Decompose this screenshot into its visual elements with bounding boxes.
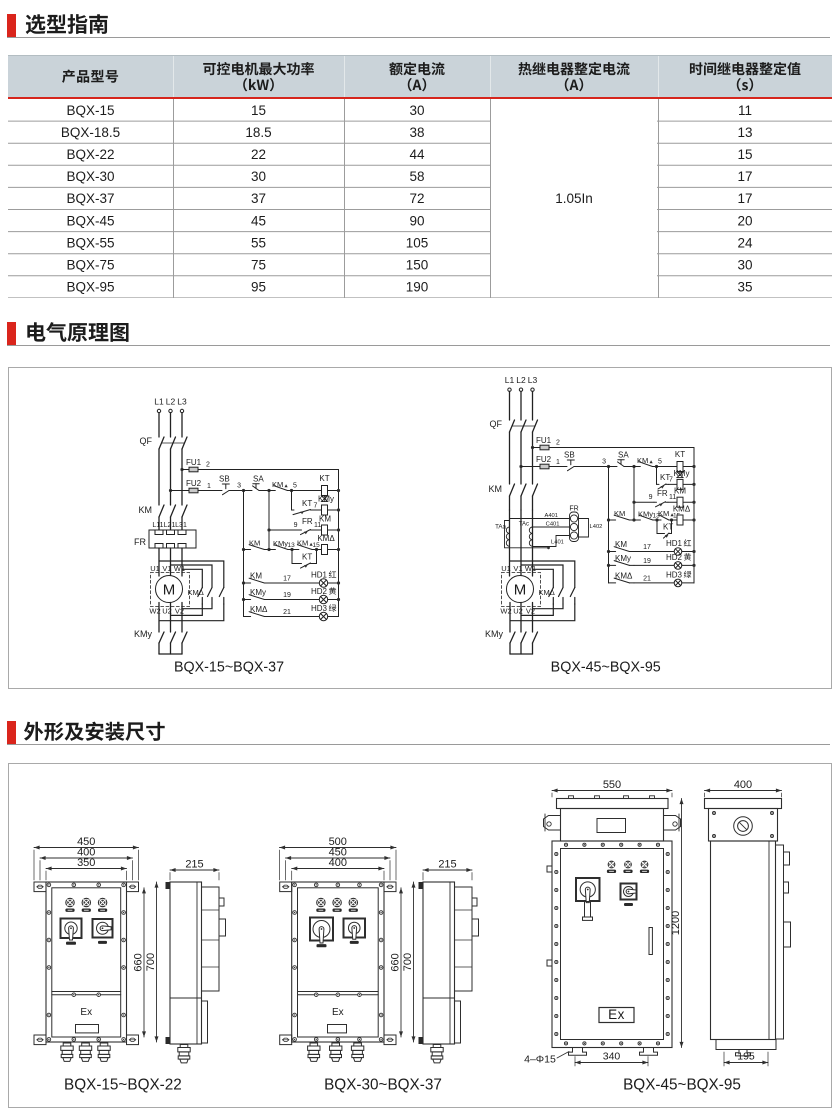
svg-text:400: 400 xyxy=(329,857,347,869)
svg-text:700: 700 xyxy=(145,953,157,971)
svg-text:550: 550 xyxy=(603,779,621,791)
svg-text:Ex: Ex xyxy=(608,1007,625,1022)
svg-text:215: 215 xyxy=(438,859,456,871)
svg-text:BQX-15~BQX-22: BQX-15~BQX-22 xyxy=(64,1077,182,1094)
svg-text:700: 700 xyxy=(402,953,414,971)
svg-text:1200: 1200 xyxy=(670,911,682,935)
svg-text:Ex: Ex xyxy=(332,1007,344,1018)
svg-text:4–Φ15: 4–Φ15 xyxy=(524,1054,556,1066)
svg-text:660: 660 xyxy=(390,953,402,971)
svg-text:BQX-45~BQX-95: BQX-45~BQX-95 xyxy=(623,1077,741,1094)
svg-text:BQX-30~BQX-37: BQX-30~BQX-37 xyxy=(324,1077,442,1094)
svg-text:Ex: Ex xyxy=(80,1007,92,1018)
svg-text:215: 215 xyxy=(185,859,203,871)
svg-text:340: 340 xyxy=(603,1051,621,1063)
svg-text:660: 660 xyxy=(133,953,145,971)
svg-text:350: 350 xyxy=(77,857,95,869)
svg-text:400: 400 xyxy=(734,779,752,791)
svg-text:195: 195 xyxy=(737,1051,755,1063)
